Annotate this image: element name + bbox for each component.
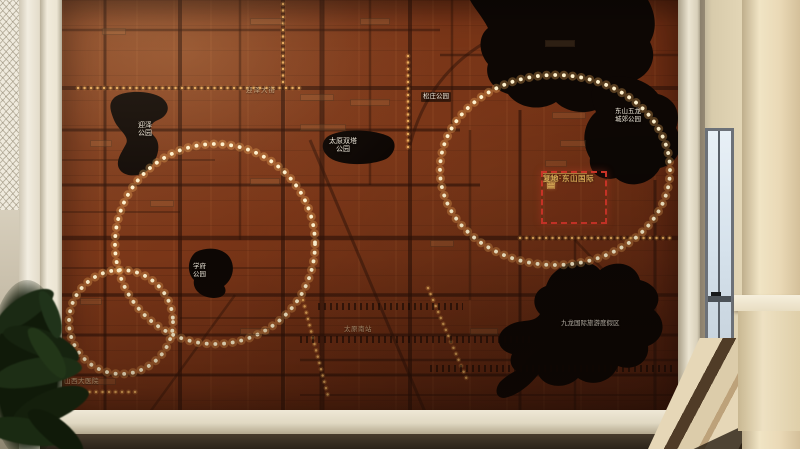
park-label-yingze: 迎泽公园	[138, 122, 156, 139]
railway-hatch	[300, 336, 530, 343]
faint-plaque	[560, 140, 586, 147]
project-location-box: ♛ 复地·东山国际	[541, 171, 607, 224]
park-label-dongshan-wulong: 东山五龙城郊公园	[615, 108, 643, 124]
faint-plaque	[350, 99, 390, 106]
column-pedestal-molding	[734, 295, 800, 311]
faint-plaque	[552, 112, 586, 119]
faint-plaque	[470, 328, 498, 335]
park-label-songzhuang: 松庄公园	[421, 92, 451, 102]
faint-plaque	[360, 18, 390, 25]
faint-plaque	[90, 140, 112, 147]
logo-subline	[543, 175, 593, 176]
wall-vent-grille	[0, 0, 19, 210]
faint-plaque	[300, 124, 346, 131]
lobby-map-photo: 迎泽公园 太原双塔公园 松庄公园 东山五龙城郊公园 学府公园 九龙国际旅游度假区…	[0, 0, 800, 449]
park-label-xuefu: 学府公园	[193, 263, 208, 279]
railway-hatch	[430, 365, 675, 372]
faint-plaque	[430, 240, 454, 247]
faint-plaque	[240, 328, 270, 335]
faint-plaque	[150, 200, 174, 207]
column-pedestal	[738, 311, 800, 431]
window-handle	[711, 292, 721, 296]
resort-label-jiulong: 九龙国际旅游度假区	[561, 320, 620, 328]
railway-hatch	[318, 303, 463, 310]
window-mullion	[718, 131, 720, 343]
station-label-taiyuan-south: 太原南站	[344, 323, 372, 333]
faint-plaque	[250, 178, 280, 185]
floor-shadow-strip	[40, 432, 660, 449]
faint-plaque	[250, 18, 284, 25]
faint-plaque	[300, 94, 334, 101]
park-label-shuangta: 太原双塔公园	[328, 138, 358, 155]
map-board: 迎泽公园 太原双塔公园 松庄公园 东山五龙城郊公园 学府公园 九龙国际旅游度假区…	[62, 0, 678, 412]
faint-plaque	[545, 160, 567, 167]
faint-plaque	[545, 40, 575, 47]
road-label-yingze-street: 迎泽大街	[246, 84, 276, 94]
faint-plaque	[102, 28, 126, 35]
window	[705, 128, 734, 346]
window-bar	[708, 296, 731, 302]
board-frame-bottom	[40, 410, 702, 434]
faint-plaque	[80, 298, 102, 305]
